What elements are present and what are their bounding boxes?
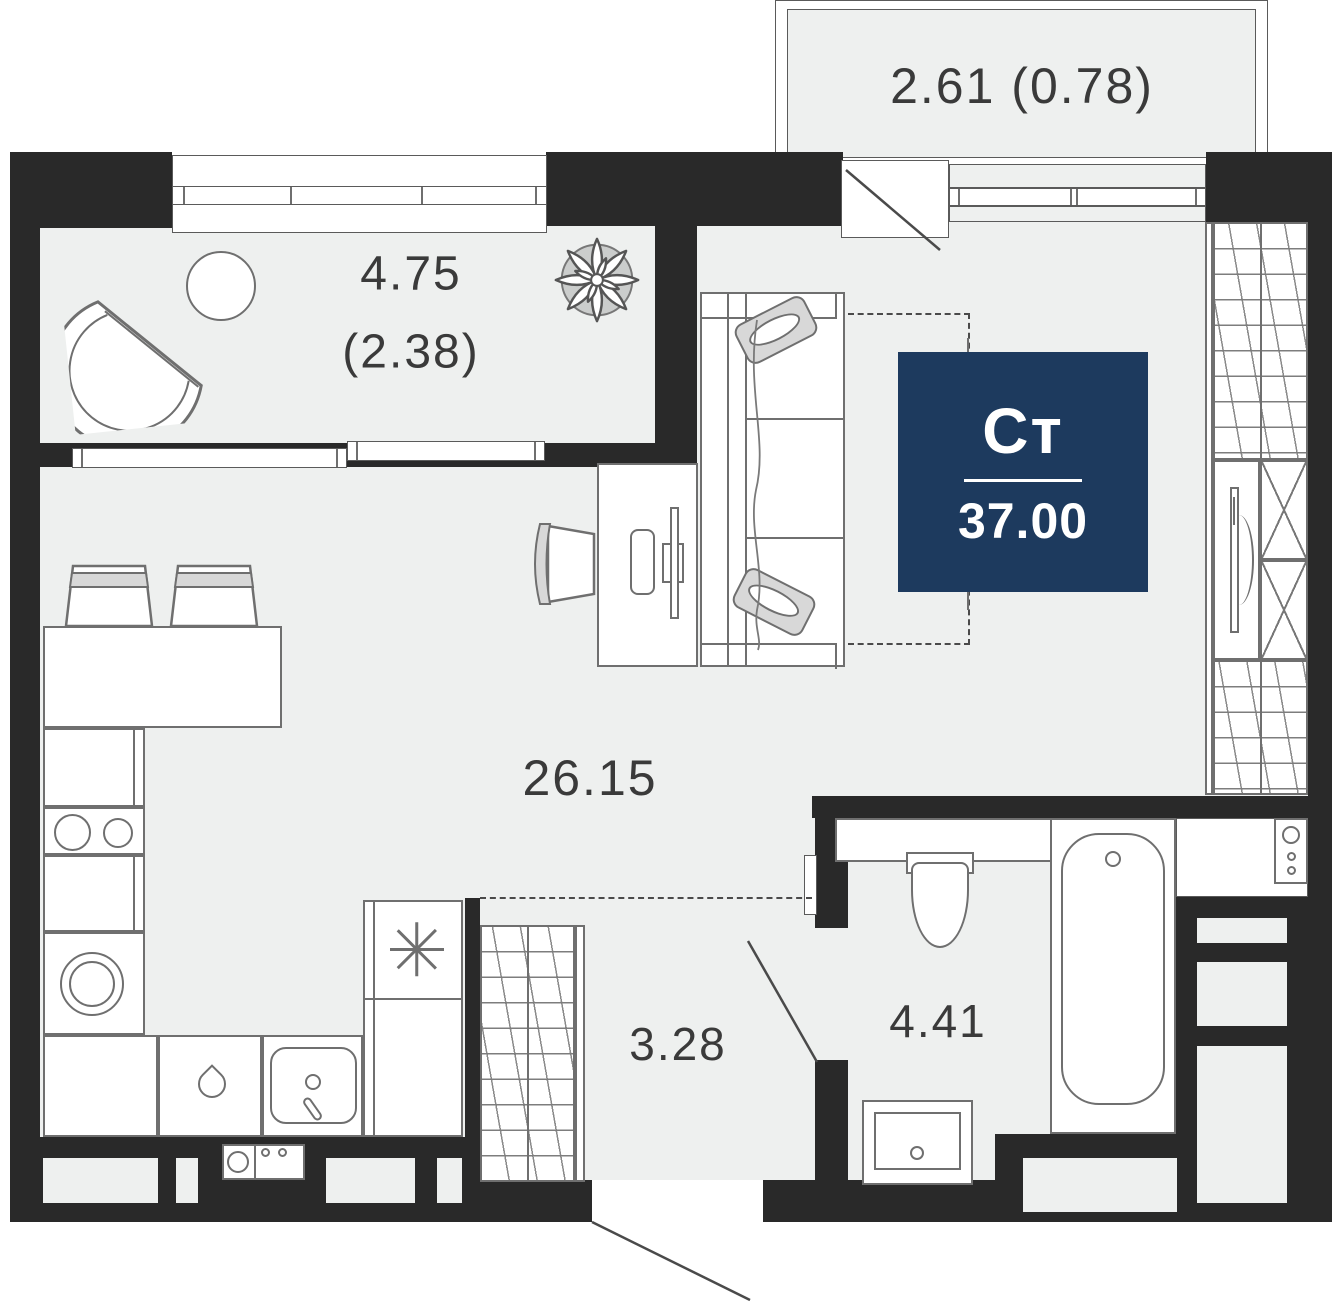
wall-bottom-hallway <box>480 1180 592 1222</box>
window-mullion <box>1076 189 1078 205</box>
loggia-area-reduced-label: (2.38) <box>342 325 479 380</box>
window-mullion <box>356 442 358 460</box>
meter-dot <box>278 1148 287 1157</box>
faucet <box>305 1074 321 1090</box>
floor-plan: 2.61 (0.78) 4.75 (2.38) 26.15 3.28 4.41 … <box>0 0 1338 1302</box>
counter-edge-line <box>133 730 135 805</box>
loggia-glazing-left <box>72 448 347 468</box>
cooktop <box>43 807 145 855</box>
wall-niche <box>43 1158 158 1203</box>
wardrobe-shelf-box <box>1260 460 1308 560</box>
loggia-area-label: 4.75 <box>360 247 461 302</box>
sleep-zone-dash-bottom <box>848 643 970 645</box>
entry-door-swing <box>592 1222 750 1300</box>
meter-dot <box>261 1148 270 1157</box>
water-unit-dot <box>1287 866 1296 875</box>
window-mullion <box>290 187 292 204</box>
apartment-type-badge: Ст 37.00 <box>898 352 1148 592</box>
wall-loggia-divider <box>655 222 697 467</box>
wall-left <box>10 152 40 1222</box>
fridge-door-line <box>373 902 375 1135</box>
tv-screen-line <box>1233 497 1235 525</box>
burner <box>103 818 133 848</box>
kitchen-cabinet <box>43 728 145 807</box>
balcony-door-opening <box>841 160 949 238</box>
window-mullion <box>81 449 83 467</box>
bathroom-area-label: 4.41 <box>889 994 987 1048</box>
vent-shaft <box>1197 1046 1287 1203</box>
sofa-cushion-line <box>745 418 843 420</box>
wall-top-middle <box>546 152 843 226</box>
wall-niche <box>176 1158 198 1203</box>
vent-shaft <box>1197 918 1287 943</box>
balcony-window-inner-strip <box>949 206 1206 222</box>
bath-sink-bowl <box>874 1112 961 1170</box>
sofa-armrest-front <box>835 643 837 669</box>
bar-stool <box>169 564 259 628</box>
hall-wardrobe <box>480 925 575 1182</box>
window-mullion <box>1070 189 1072 205</box>
loggia-window-frame <box>172 186 547 205</box>
washing-machine <box>43 932 145 1035</box>
hallway-area-label: 3.28 <box>629 1017 727 1071</box>
apartment-type-label: Ст <box>982 399 1064 463</box>
apartment-total-area: 37.00 <box>958 496 1088 546</box>
badge-divider <box>964 479 1082 482</box>
kitchen-cabinet-bottom <box>158 1035 262 1137</box>
bath-sink-drain <box>910 1146 924 1160</box>
monitor <box>670 507 679 619</box>
sleep-zone-dash-top <box>848 313 970 315</box>
badge-tick-top <box>967 338 969 352</box>
wardrobe-hanging-top <box>1213 222 1308 460</box>
counter-edge-line <box>133 857 135 930</box>
vent-shaft <box>1197 962 1287 1026</box>
kitchen-island-counter <box>43 626 282 728</box>
balcony-area-label: 2.61 (0.78) <box>890 57 1154 115</box>
badge-tick-bottom <box>967 592 969 610</box>
kitchen-corner-cabinet <box>43 1035 158 1137</box>
water-unit-dot <box>1287 852 1296 861</box>
sofa-backrest-line <box>727 294 729 665</box>
window-mullion <box>336 449 338 467</box>
living-area-label: 26.15 <box>522 749 657 807</box>
sofa-cushion-line <box>745 537 843 539</box>
loggia-glazing-right <box>347 441 545 461</box>
balcony-window-outer-strip <box>949 164 1206 188</box>
water-unit-dial <box>1282 826 1300 844</box>
sofa-armrest-line <box>702 643 837 645</box>
burner <box>54 814 91 851</box>
wardrobe-shelf-box <box>1260 560 1308 660</box>
hallway-zone-dash <box>480 897 812 899</box>
washer-drum-inner <box>69 961 115 1007</box>
window-mullion <box>958 189 960 205</box>
bathroom-door-jamb <box>804 855 817 915</box>
wardrobe-divider <box>527 927 529 1180</box>
wardrobe-side-panel <box>1205 222 1213 795</box>
window-mullion <box>421 187 423 204</box>
desk-chair <box>524 518 598 610</box>
wardrobe-hanging-bottom <box>1213 660 1308 795</box>
snowflake-icon <box>390 922 444 976</box>
round-table <box>186 251 256 321</box>
window-mullion <box>534 442 536 460</box>
wall-niche <box>437 1158 462 1203</box>
window-mullion <box>1195 189 1197 205</box>
wall-right <box>1308 152 1332 1222</box>
wall-niche <box>1023 1158 1177 1212</box>
wall-bathroom-left-lower <box>815 1060 848 1180</box>
wall-partition-fridge <box>465 898 480 1182</box>
wardrobe-divider <box>1260 224 1262 458</box>
teardrop-icon <box>192 1064 232 1104</box>
plant-icon <box>548 231 646 329</box>
bathtub-drain <box>1105 851 1121 867</box>
window-mullion <box>535 187 537 204</box>
hall-wardrobe-panel <box>575 925 585 1182</box>
bathtub-basin <box>1061 833 1165 1105</box>
balcony-window-frame <box>949 188 1206 206</box>
kitchen-sink-cabinet <box>262 1035 363 1137</box>
wardrobe-divider <box>1260 662 1262 793</box>
keyboard <box>630 529 655 595</box>
bar-stool <box>64 564 154 628</box>
sofa-armrest-front <box>835 294 837 319</box>
kitchen-cabinet <box>43 855 145 932</box>
meter-dial <box>227 1151 249 1173</box>
fridge-divider <box>365 998 461 1000</box>
wall-bathroom-top <box>812 796 1308 818</box>
wall-niche <box>326 1158 415 1203</box>
window-mullion <box>183 187 185 204</box>
